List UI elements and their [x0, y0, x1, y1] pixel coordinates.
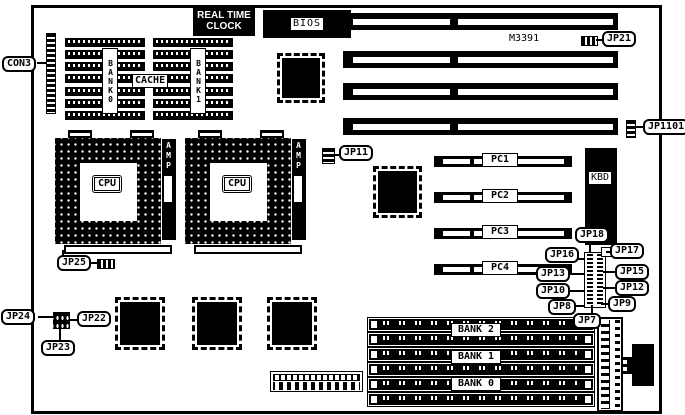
jp1101-jumper: [626, 120, 636, 138]
rtc-label-line2: CLOCK: [206, 21, 242, 32]
cpu2-label-box: CPU: [222, 175, 252, 193]
bios-chip: BIOS: [263, 10, 351, 38]
cpu1-tab-left: [68, 130, 92, 138]
qfp-chip-top: [277, 53, 325, 103]
bank0-label: BANK 0: [451, 377, 501, 391]
jp23-label: JP23: [41, 340, 75, 356]
jp22-jumper-block: [53, 312, 70, 329]
cpu1-tab-right: [130, 130, 154, 138]
jp1101-label: JP1101: [643, 119, 685, 135]
real-time-clock-chip: REAL TIME CLOCK: [193, 6, 255, 36]
cache-bank0-label: BANK0: [102, 48, 118, 114]
cpu2-tab-right: [260, 130, 284, 138]
jp25-jumper: [97, 259, 115, 269]
con3-leader-line: [37, 62, 47, 64]
cpu2-label: CPU: [224, 177, 250, 191]
con3-connector: [46, 33, 56, 114]
bank2-label: BANK 2: [451, 323, 501, 337]
jp13-label: JP13: [536, 266, 570, 282]
jp25-leader-line: [90, 262, 98, 264]
bank1-label: BANK 1: [451, 350, 501, 364]
qfp-chip-middle: [373, 166, 422, 218]
cpu2-amp-label: AMP: [294, 141, 303, 171]
jp15-label: JP15: [615, 264, 649, 280]
jp21-jumper: [581, 36, 598, 46]
pc4-label: PC4: [482, 261, 518, 275]
dip-socket-row: [153, 38, 233, 47]
power-connector-pins-right: [615, 320, 620, 409]
motherboard-diagram: CON3 BANK0 BANK1 CACHE REAL TIME CLOCK B…: [0, 0, 685, 415]
con3-label: CON3: [2, 56, 36, 72]
cpu1-amp-notch: [164, 176, 172, 202]
cpu1-label-box: CPU: [92, 175, 122, 193]
jp24-label: JP24: [1, 309, 35, 325]
cpu1-amp-socket: AMP: [162, 139, 176, 240]
qfp-chip-bottom-1: [115, 297, 165, 350]
keyboard-din-connector: [632, 344, 654, 386]
m3391-label: M3391: [509, 33, 539, 44]
jp21-label: JP21: [602, 31, 636, 47]
bottom-pin-connector: [270, 371, 363, 392]
simm-socket-6: [367, 392, 595, 407]
kbd-label: KBD: [588, 171, 612, 185]
jp16-label: JP16: [545, 247, 579, 263]
isa-slot-1: [343, 13, 618, 30]
jp7-label: JP7: [573, 313, 601, 329]
pc2-label: PC2: [482, 189, 518, 203]
power-connector-pins-left: [601, 320, 610, 409]
bottom-connector-row-bottom: [273, 382, 360, 390]
isa-slot-2: [343, 51, 618, 68]
cpu2-lever: [194, 245, 302, 254]
power-connector: [597, 317, 623, 412]
cpu2-amp-notch: [294, 176, 302, 202]
bottom-connector-row-top: [273, 374, 360, 381]
cpu2-tab-left: [198, 130, 222, 138]
cache-bank1-label: BANK1: [190, 48, 206, 114]
jp24-leader-line: [38, 316, 54, 318]
jp9-label: JP9: [608, 296, 636, 312]
isa-slot-3: [343, 83, 618, 100]
din-notch-1: [623, 360, 627, 364]
qfp-chip-bottom-2: [192, 297, 242, 350]
cpu2-amp-socket: AMP: [292, 139, 306, 240]
pc1-label: PC1: [482, 153, 518, 167]
jp18-label: JP18: [575, 227, 609, 243]
simm-socket-4: [367, 362, 595, 377]
jp8-label: JP8: [548, 299, 576, 315]
bios-label: BIOS: [290, 17, 324, 31]
jp12-label: JP12: [615, 280, 649, 296]
jp22-label: JP22: [77, 311, 111, 327]
jp25-label: JP25: [57, 255, 91, 271]
qfp-chip-bottom-3: [267, 297, 317, 350]
din-notch-2: [623, 367, 627, 371]
pc3-label: PC3: [482, 225, 518, 239]
jp11-jumper: [322, 148, 335, 164]
jp11-label: JP11: [339, 145, 373, 161]
dip-socket-row: [65, 38, 145, 47]
rtc-label-line1: REAL TIME: [197, 10, 251, 21]
cache-label: CACHE: [132, 74, 168, 88]
jumper-header-block: [584, 252, 606, 308]
cpu1-label: CPU: [94, 177, 120, 191]
isa-slot-4: [343, 118, 618, 135]
cpu1-amp-label: AMP: [164, 141, 173, 171]
cpu1-lever: [64, 245, 172, 254]
jp17-label: JP17: [610, 243, 644, 259]
jp10-label: JP10: [536, 283, 570, 299]
